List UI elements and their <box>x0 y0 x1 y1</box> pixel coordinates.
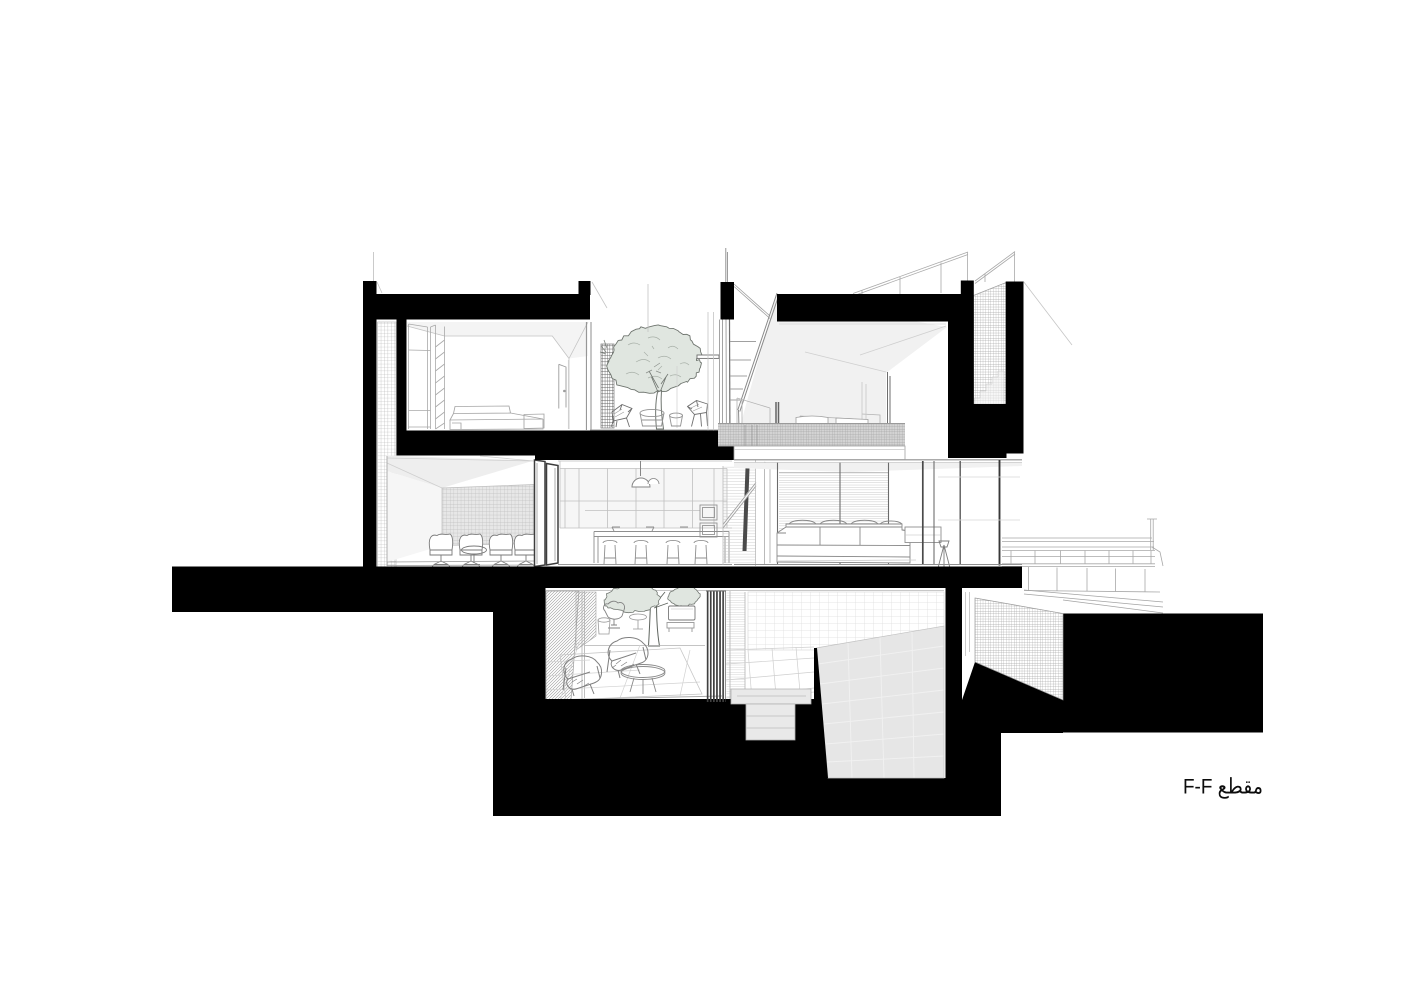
svg-text:F-F مقطع: F-F مقطع <box>1183 775 1263 800</box>
